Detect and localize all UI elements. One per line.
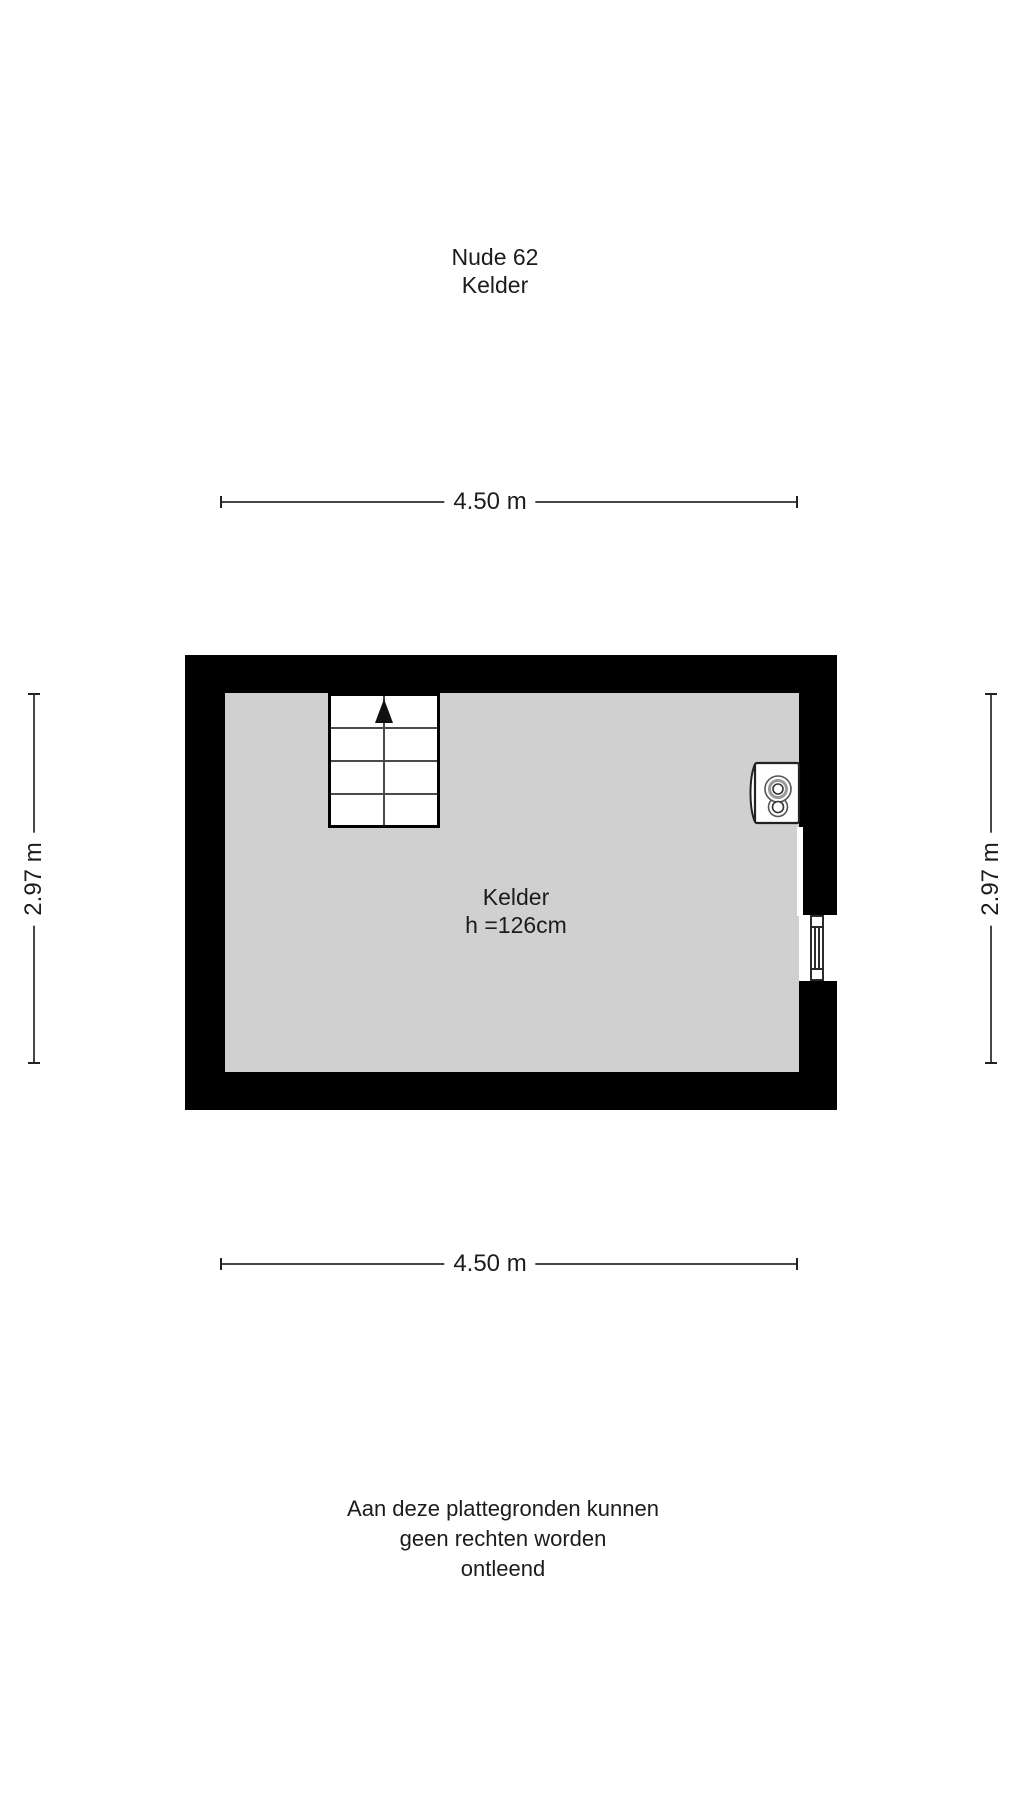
- disclaimer-line-2: geen rechten worden: [347, 1524, 659, 1554]
- window-glass-line: [818, 928, 820, 968]
- disclaimer-line-1: Aan deze plattegronden kunnen: [347, 1494, 659, 1524]
- room-name: Kelder: [465, 883, 567, 911]
- boiler-icon: [745, 760, 803, 826]
- room-label-block: Kelder h =126cm: [465, 883, 567, 939]
- dimension-top: 4.50 m: [220, 496, 798, 508]
- stair-step-line: [331, 727, 437, 729]
- window-frame: [810, 915, 824, 981]
- wall-recess: [797, 827, 803, 916]
- dimension-top-tick-left: [220, 496, 222, 508]
- window-icon: [799, 915, 837, 981]
- plan-subtitle: Kelder: [452, 271, 539, 299]
- stairs-up-arrow-icon: [375, 699, 393, 723]
- disclaimer-text: Aan deze plattegronden kunnen geen recht…: [347, 1494, 659, 1584]
- plan-title-block: Nude 62 Kelder: [452, 243, 539, 299]
- dimension-bottom-tick-right: [796, 1258, 798, 1270]
- staircase: [328, 693, 440, 828]
- dimension-right-tick-bottom: [985, 1062, 997, 1064]
- dimension-bottom: 4.50 m: [220, 1258, 798, 1270]
- dimension-bottom-tick-left: [220, 1258, 222, 1270]
- dimension-top-label: 4.50 m: [444, 488, 535, 516]
- floorplan-page: Nude 62 Kelder 4.50 m 2.97 m 2.97 m: [0, 0, 1024, 1820]
- dimension-left: 2.97 m: [28, 693, 40, 1064]
- plan-title: Nude 62: [452, 243, 539, 271]
- window-glass-line: [814, 928, 816, 968]
- dimension-top-tick-right: [796, 496, 798, 508]
- dimension-right-tick-top: [985, 693, 997, 695]
- dimension-right-label: 2.97 m: [977, 832, 1005, 925]
- stair-step-line: [331, 793, 437, 795]
- disclaimer-line-3: ontleend: [347, 1554, 659, 1584]
- dimension-right: 2.97 m: [985, 693, 997, 1064]
- stair-step-line: [331, 760, 437, 762]
- window-frame-bottom-divider: [812, 968, 822, 970]
- dimension-left-label: 2.97 m: [20, 832, 48, 925]
- room-ceiling-height: h =126cm: [465, 911, 567, 939]
- dimension-left-tick-top: [28, 693, 40, 695]
- dimension-left-tick-bottom: [28, 1062, 40, 1064]
- dimension-bottom-label: 4.50 m: [444, 1250, 535, 1278]
